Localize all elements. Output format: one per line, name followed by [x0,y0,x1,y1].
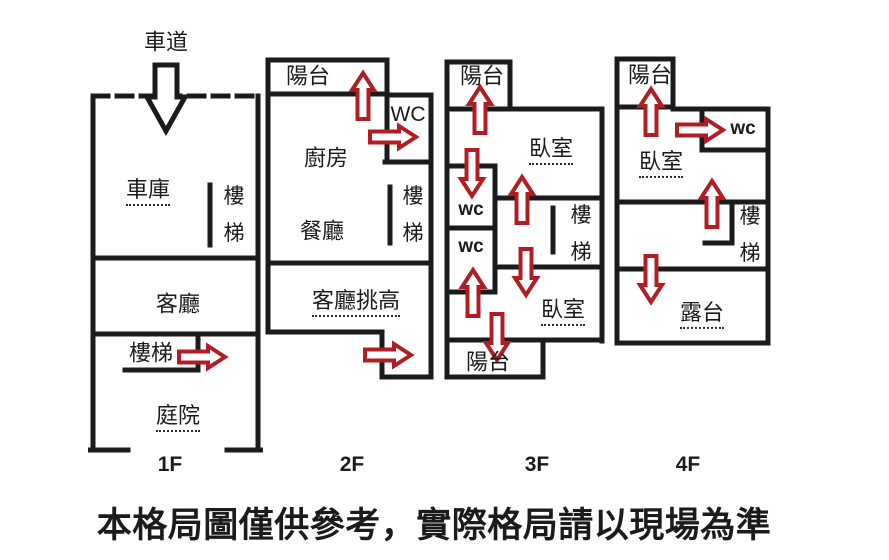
arrow-down-icon [515,249,537,295]
floor-label-1f: 1F [158,454,183,476]
arrow-right-icon [370,126,416,148]
room-label-bedroom-front: 臥室 [529,137,573,165]
floor-label-4f: 4F [676,454,701,476]
floorplan-canvas: 車道 車庫 樓梯 客廳 樓梯 庭院 1F 陽台 WC 廚房 餐廳 樓梯 客廳挑高… [0,0,889,560]
room-label-balcony-front-3f: 陽台 [460,64,504,87]
floor-label-3f: 3F [525,454,550,476]
arrow-down-icon [640,256,662,302]
driveway-arrow-down-icon [147,65,185,131]
room-label-balcony-2f: 陽台 [286,64,330,87]
room-label-living-1f: 客廳 [156,292,200,315]
arrow-right-icon [179,346,225,368]
floorplan-drawing [0,0,889,560]
driveway-arrow-group [147,65,185,131]
room-label-stairs-4f: 樓梯 [737,198,763,272]
room-label-wc-2f: WC [391,104,426,126]
room-label-stairs-1f: 樓梯 [221,178,247,252]
room-label-balcony-4f: 陽台 [628,63,672,86]
room-label-bedroom-4f: 臥室 [639,150,683,178]
floor-label-2f: 2F [340,454,365,476]
room-label-courtyard: 庭院 [156,404,200,432]
room-label-driveway: 車道 [144,30,188,53]
room-label-dining: 餐廳 [300,219,344,242]
arrow-down-icon [461,150,483,196]
room-label-wc1-3f: wc [458,200,483,220]
room-label-garage: 車庫 [126,178,170,206]
room-label-stairs-lower-1f: 樓梯 [129,341,173,364]
room-label-stairs-3f: 樓梯 [568,197,594,271]
arrow-up-icon [640,89,662,135]
disclaimer-text: 本格局圖僅供參考，實際格局請以現場為準 [0,497,868,548]
room-label-wc-4f: wc [730,119,755,139]
room-label-balcony-rear-3f: 陽台 [466,350,510,373]
arrow-right-icon [365,344,411,366]
room-label-stairs-2f: 樓梯 [400,178,426,252]
room-label-wc2-3f: wc [458,237,483,257]
floor1-walls [91,96,261,450]
direction-arrows [179,73,723,368]
room-label-terrace: 露台 [680,301,724,329]
wall-lines [91,59,769,450]
room-label-bedroom-rear: 臥室 [541,298,585,326]
room-label-living-double-height: 客廳挑高 [312,289,400,317]
room-label-kitchen: 廚房 [304,146,348,169]
